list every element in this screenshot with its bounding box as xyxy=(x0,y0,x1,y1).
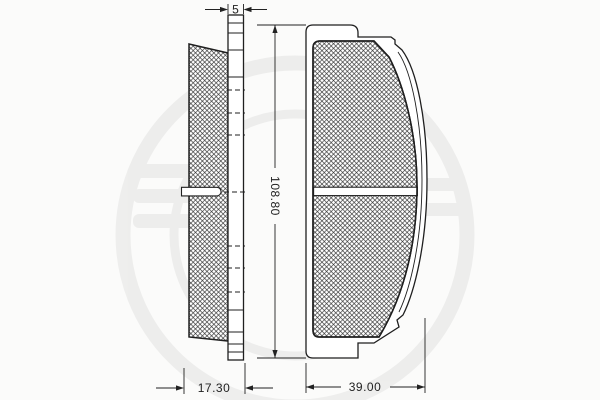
dim-pad-height: 108.80 xyxy=(257,25,306,358)
side-backing-plate xyxy=(228,15,244,360)
dim-pad-width-label: 39.00 xyxy=(349,380,382,394)
dim-total-depth-label: 17.30 xyxy=(198,381,231,395)
friction-groove xyxy=(314,187,418,195)
technical-drawing: 5 108.80 17.30 39.00 xyxy=(0,0,600,400)
dim-plate-thickness-label: 5 xyxy=(232,3,239,17)
front-view xyxy=(306,25,427,358)
dim-plate-thickness: 5 xyxy=(205,3,267,17)
dim-pad-height-label: 108.80 xyxy=(268,176,282,216)
drawing-sheet: 5 108.80 17.30 39.00 xyxy=(0,0,600,400)
wear-slot xyxy=(182,187,222,196)
side-view xyxy=(182,15,248,360)
